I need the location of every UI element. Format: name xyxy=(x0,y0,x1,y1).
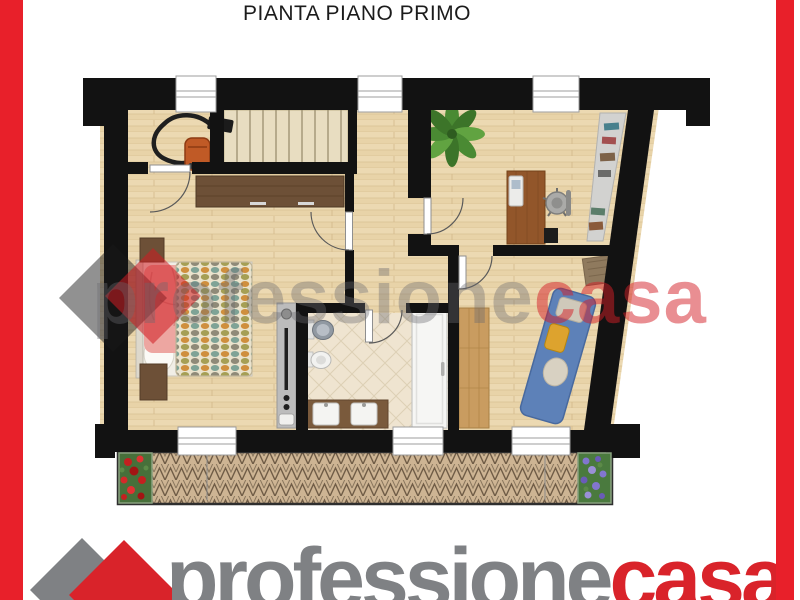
sink-vanity-icon xyxy=(306,400,388,428)
shower-icon xyxy=(412,310,447,428)
closet-strip-icon xyxy=(459,308,489,428)
floor-plan-page: professionecasa PIANTA PIANO PRIMO profe… xyxy=(0,0,800,600)
window xyxy=(176,76,216,112)
window xyxy=(533,76,579,112)
nightstand-icon xyxy=(140,364,167,400)
balcony-door-window xyxy=(512,427,570,455)
staircase-icon xyxy=(224,110,348,163)
balcony-door-window xyxy=(178,427,236,455)
brand-logo-text-primary: professione xyxy=(166,531,609,600)
page-title: PIANTA PIANO PRIMO xyxy=(243,2,471,26)
brand-logo: professionecasa xyxy=(0,520,800,600)
planter-red-icon xyxy=(119,453,152,503)
brand-logo-text-accent: casa xyxy=(609,531,784,600)
right-red-border-bar xyxy=(776,0,794,600)
nightstand-icon xyxy=(140,238,164,262)
wardrobe-icon xyxy=(196,176,344,207)
window xyxy=(358,76,402,112)
balcony-door-window xyxy=(393,427,443,455)
planter-purple-icon xyxy=(578,453,611,503)
double-bed-icon xyxy=(136,260,252,378)
left-red-border-bar xyxy=(0,0,23,600)
brand-logo-text: professionecasa xyxy=(166,536,785,600)
bidet-icon xyxy=(307,352,331,369)
toilet-icon xyxy=(307,320,334,340)
balcony-floor xyxy=(118,452,612,504)
laundry-cabinet-icon xyxy=(277,303,296,428)
brand-logo-mark xyxy=(26,530,178,600)
pc-tower-icon xyxy=(544,228,558,243)
floor-plan xyxy=(0,0,800,600)
desk-icon xyxy=(507,171,545,244)
